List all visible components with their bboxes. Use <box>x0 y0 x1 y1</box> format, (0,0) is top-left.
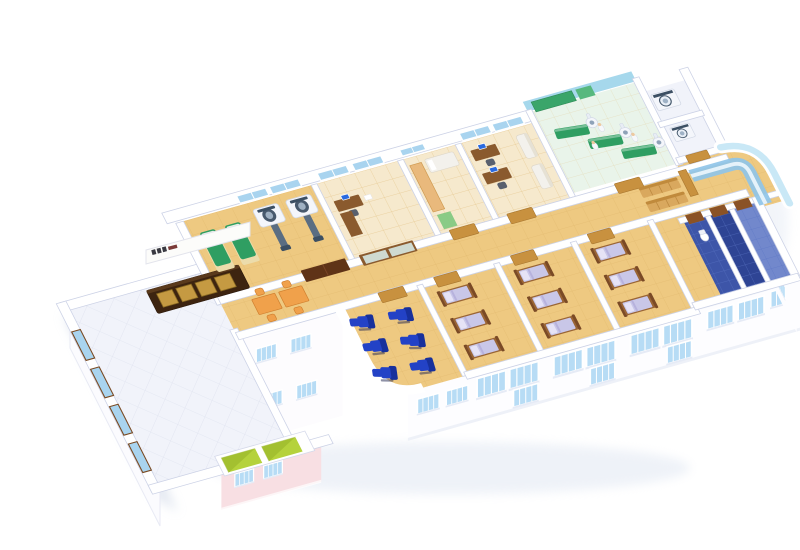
page: 3D isometric cutaway floor plan renderin… <box>0 0 800 550</box>
floor-plan-render: 3D isometric cutaway floor plan renderin… <box>0 0 800 550</box>
